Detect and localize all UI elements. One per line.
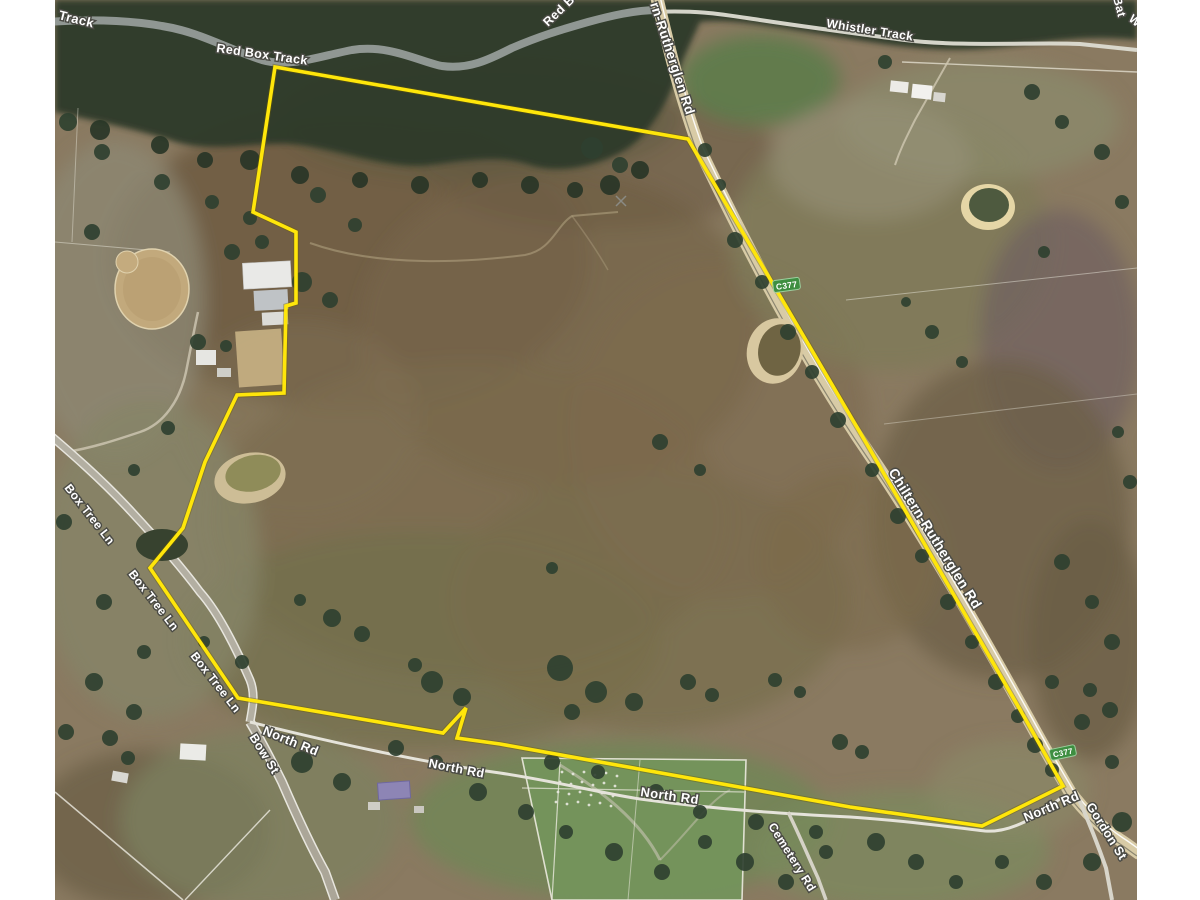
right-margin [1137,0,1200,900]
map-content: n Track Red Box Track Red B rn-Ruthergle… [25,0,1150,900]
cemetery [522,758,746,900]
aerial-property-map: n Track Red Box Track Red B rn-Ruthergle… [0,0,1200,900]
map-canvas: n Track Red Box Track Red B rn-Ruthergle… [0,0,1200,900]
left-margin [0,0,55,900]
dam-east [961,184,1015,230]
